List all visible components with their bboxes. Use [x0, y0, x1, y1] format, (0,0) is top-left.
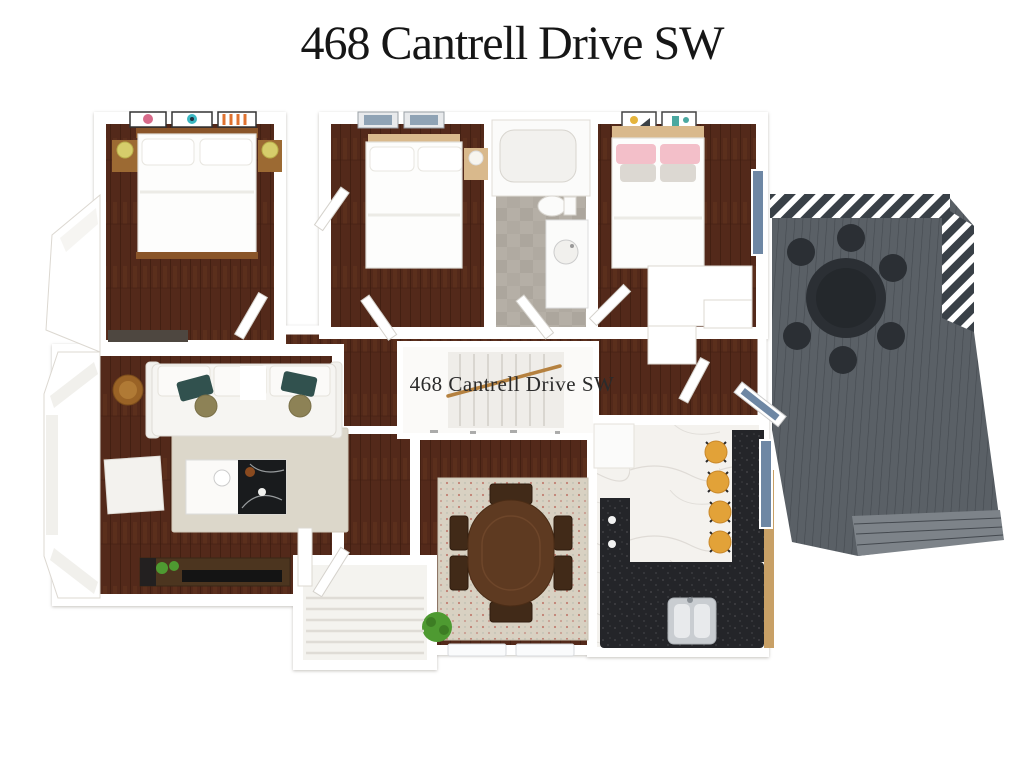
coffee-table-marble [238, 460, 286, 514]
floor-plan-page: 468 Cantrell Drive SW [0, 0, 1024, 767]
sofa [146, 362, 342, 438]
tv-console [140, 558, 290, 586]
bar-stool-1 [705, 441, 727, 463]
bar-stool-4 [709, 531, 731, 553]
wall-art-gallery [130, 112, 256, 127]
kitchen-window [760, 440, 772, 528]
dining-room [422, 478, 588, 656]
bar-stool-2 [707, 471, 729, 493]
tv [182, 570, 282, 582]
pink-pillow-2 [660, 144, 700, 164]
coffee-table [186, 460, 286, 514]
pink-pillow-1 [616, 144, 656, 164]
kitchen-sink [668, 597, 716, 644]
toilet [538, 196, 566, 216]
vanity-sink [554, 240, 578, 264]
lamp-right [262, 142, 278, 158]
watermark-text: 468 Cantrell Drive SW [410, 372, 615, 396]
kitchen-counter-left [600, 498, 630, 578]
entry-wall [298, 528, 312, 586]
deck-steps [852, 510, 1004, 556]
deck-pergola-right [942, 206, 974, 332]
bedroom-3-window [752, 170, 764, 255]
bedroom-1-bench [108, 330, 188, 342]
fridge [594, 424, 634, 468]
dining-window-2 [516, 644, 574, 656]
sofa-throw [240, 366, 266, 400]
art-pink [143, 114, 153, 124]
lamp-left [117, 142, 133, 158]
bay-window [44, 352, 100, 598]
deck-pergola-top [770, 194, 950, 218]
floor-plan-svg: 468 Cantrell Drive SW [0, 0, 1024, 767]
dining-window-1 [448, 644, 506, 656]
bedroom-2-lamp [469, 151, 483, 165]
ottoman [104, 456, 164, 514]
entry-stairs-area [298, 560, 432, 665]
deck [770, 194, 1004, 556]
bar-stool-3 [709, 501, 731, 523]
